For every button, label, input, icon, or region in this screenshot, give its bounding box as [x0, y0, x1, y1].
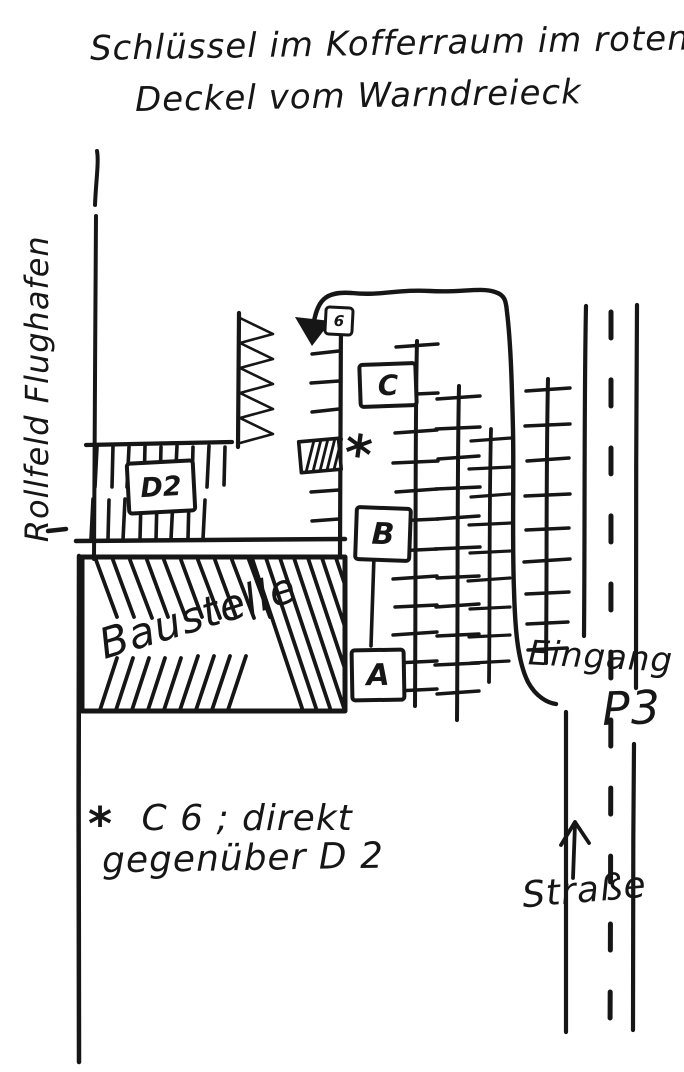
note-line-2: gegenüber D 2	[102, 838, 385, 881]
row-d2-box: D2	[125, 458, 198, 516]
hand-drawn-parking-map: Schlüssel im Kofferraum im roten Deckel …	[0, 0, 684, 1072]
parking-row-3	[468, 429, 511, 682]
row-a-label: A	[366, 657, 390, 692]
row-b-box: B	[353, 505, 413, 563]
entrance-label: Eingang	[527, 636, 674, 679]
row-c-box: C	[357, 361, 419, 409]
title-line-1: Schlüssel im Kofferraum im roten	[90, 24, 541, 68]
parking-row-4	[524, 379, 570, 663]
row-b-label: B	[371, 516, 395, 552]
note-line-1: * C 6 ; direkt	[88, 790, 353, 838]
outer-boundary-line	[48, 529, 79, 1062]
row-a-box: A	[350, 648, 407, 703]
hatched-marker-block	[299, 438, 345, 473]
row-d2-label: D2	[140, 470, 183, 503]
route-path	[313, 290, 556, 704]
title-line-2: Deckel vom Warndreieck	[135, 77, 486, 119]
entrance-lot-label: P3	[601, 683, 662, 733]
b-to-a-connector	[371, 556, 374, 646]
note-line-1-text: C 6 ; direkt	[142, 798, 353, 839]
spot-6-box: 6	[323, 305, 355, 337]
row-c-label: C	[377, 368, 399, 402]
airfield-boundary-line	[94, 151, 98, 559]
spot-6-label: 6	[333, 312, 344, 331]
airfield-label: Rollfeld Flughafen	[21, 219, 55, 559]
zigzag-barrier	[238, 313, 273, 447]
